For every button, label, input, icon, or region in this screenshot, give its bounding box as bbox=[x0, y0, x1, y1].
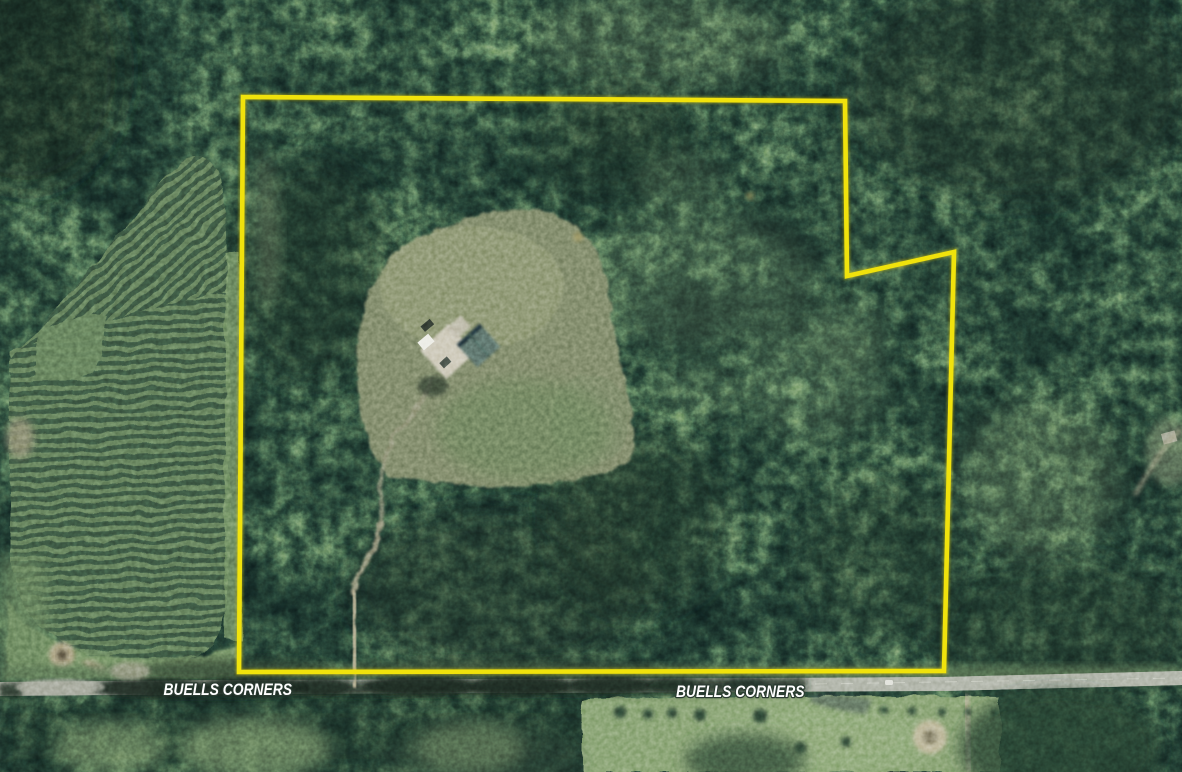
svg-text:BUELLS CORNERS: BUELLS CORNERS bbox=[164, 681, 292, 699]
svg-text:BUELLS CORNERS: BUELLS CORNERS bbox=[676, 683, 804, 701]
